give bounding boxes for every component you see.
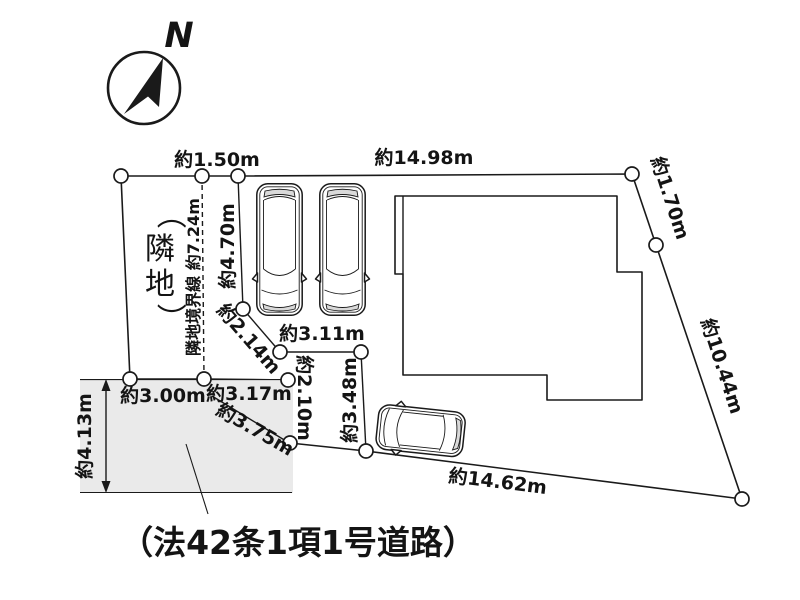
svg-text:）: ） (152, 303, 187, 333)
dim-left-vertical: 約4.70m (216, 203, 239, 289)
vertex-marker (114, 169, 128, 183)
parked-car-icon (316, 184, 370, 315)
vertex-marker (354, 345, 368, 359)
vertex-marker (649, 238, 663, 252)
vertex-marker (735, 492, 749, 506)
dim-step-vertical-right: 約3.48m (338, 357, 361, 443)
dim-step-horizontal: 約3.11m (279, 322, 365, 345)
vertex-marker (195, 169, 209, 183)
dim-road-width: 約4.13m (73, 393, 96, 479)
dim-front-center: 約3.17m (206, 382, 292, 405)
north-label: N (164, 16, 193, 56)
vertex-marker (231, 169, 245, 183)
dim-front-left: 約3.00m (120, 384, 206, 407)
parked-car-icon (253, 184, 307, 315)
vertex-marker (625, 167, 639, 181)
parked-car-icon (375, 399, 467, 462)
svg-text:（: （ (152, 199, 187, 229)
svg-text:隣: 隣 (145, 232, 175, 267)
site-plan-canvas: N 約1.50m 約14.98m 約1.70m 約10.44m 約14.62m … (0, 0, 800, 600)
north-compass: N (108, 16, 194, 124)
vertex-marker (123, 372, 137, 386)
dim-bottom-width: 約14.62m (447, 464, 548, 499)
dim-top-offset: 約1.50m (174, 148, 260, 171)
dim-right-lower: 約10.44m (696, 315, 748, 416)
neighbor-label: （ 隣 地 ） (145, 199, 187, 333)
road-label: （法42条1項1号道路） (120, 523, 476, 562)
building-outline (395, 196, 642, 400)
dim-step-vertical-left: 約2.10m (293, 355, 316, 441)
svg-text:地: 地 (145, 267, 175, 302)
vertex-marker (359, 444, 373, 458)
plot-plan-diagram: N 約1.50m 約14.98m 約1.70m 約10.44m 約14.62m … (0, 0, 800, 600)
dim-top-width: 約14.98m (375, 146, 474, 169)
dim-right-upper: 約1.70m (646, 154, 694, 243)
dim-line-step-vertical-right (361, 352, 366, 451)
